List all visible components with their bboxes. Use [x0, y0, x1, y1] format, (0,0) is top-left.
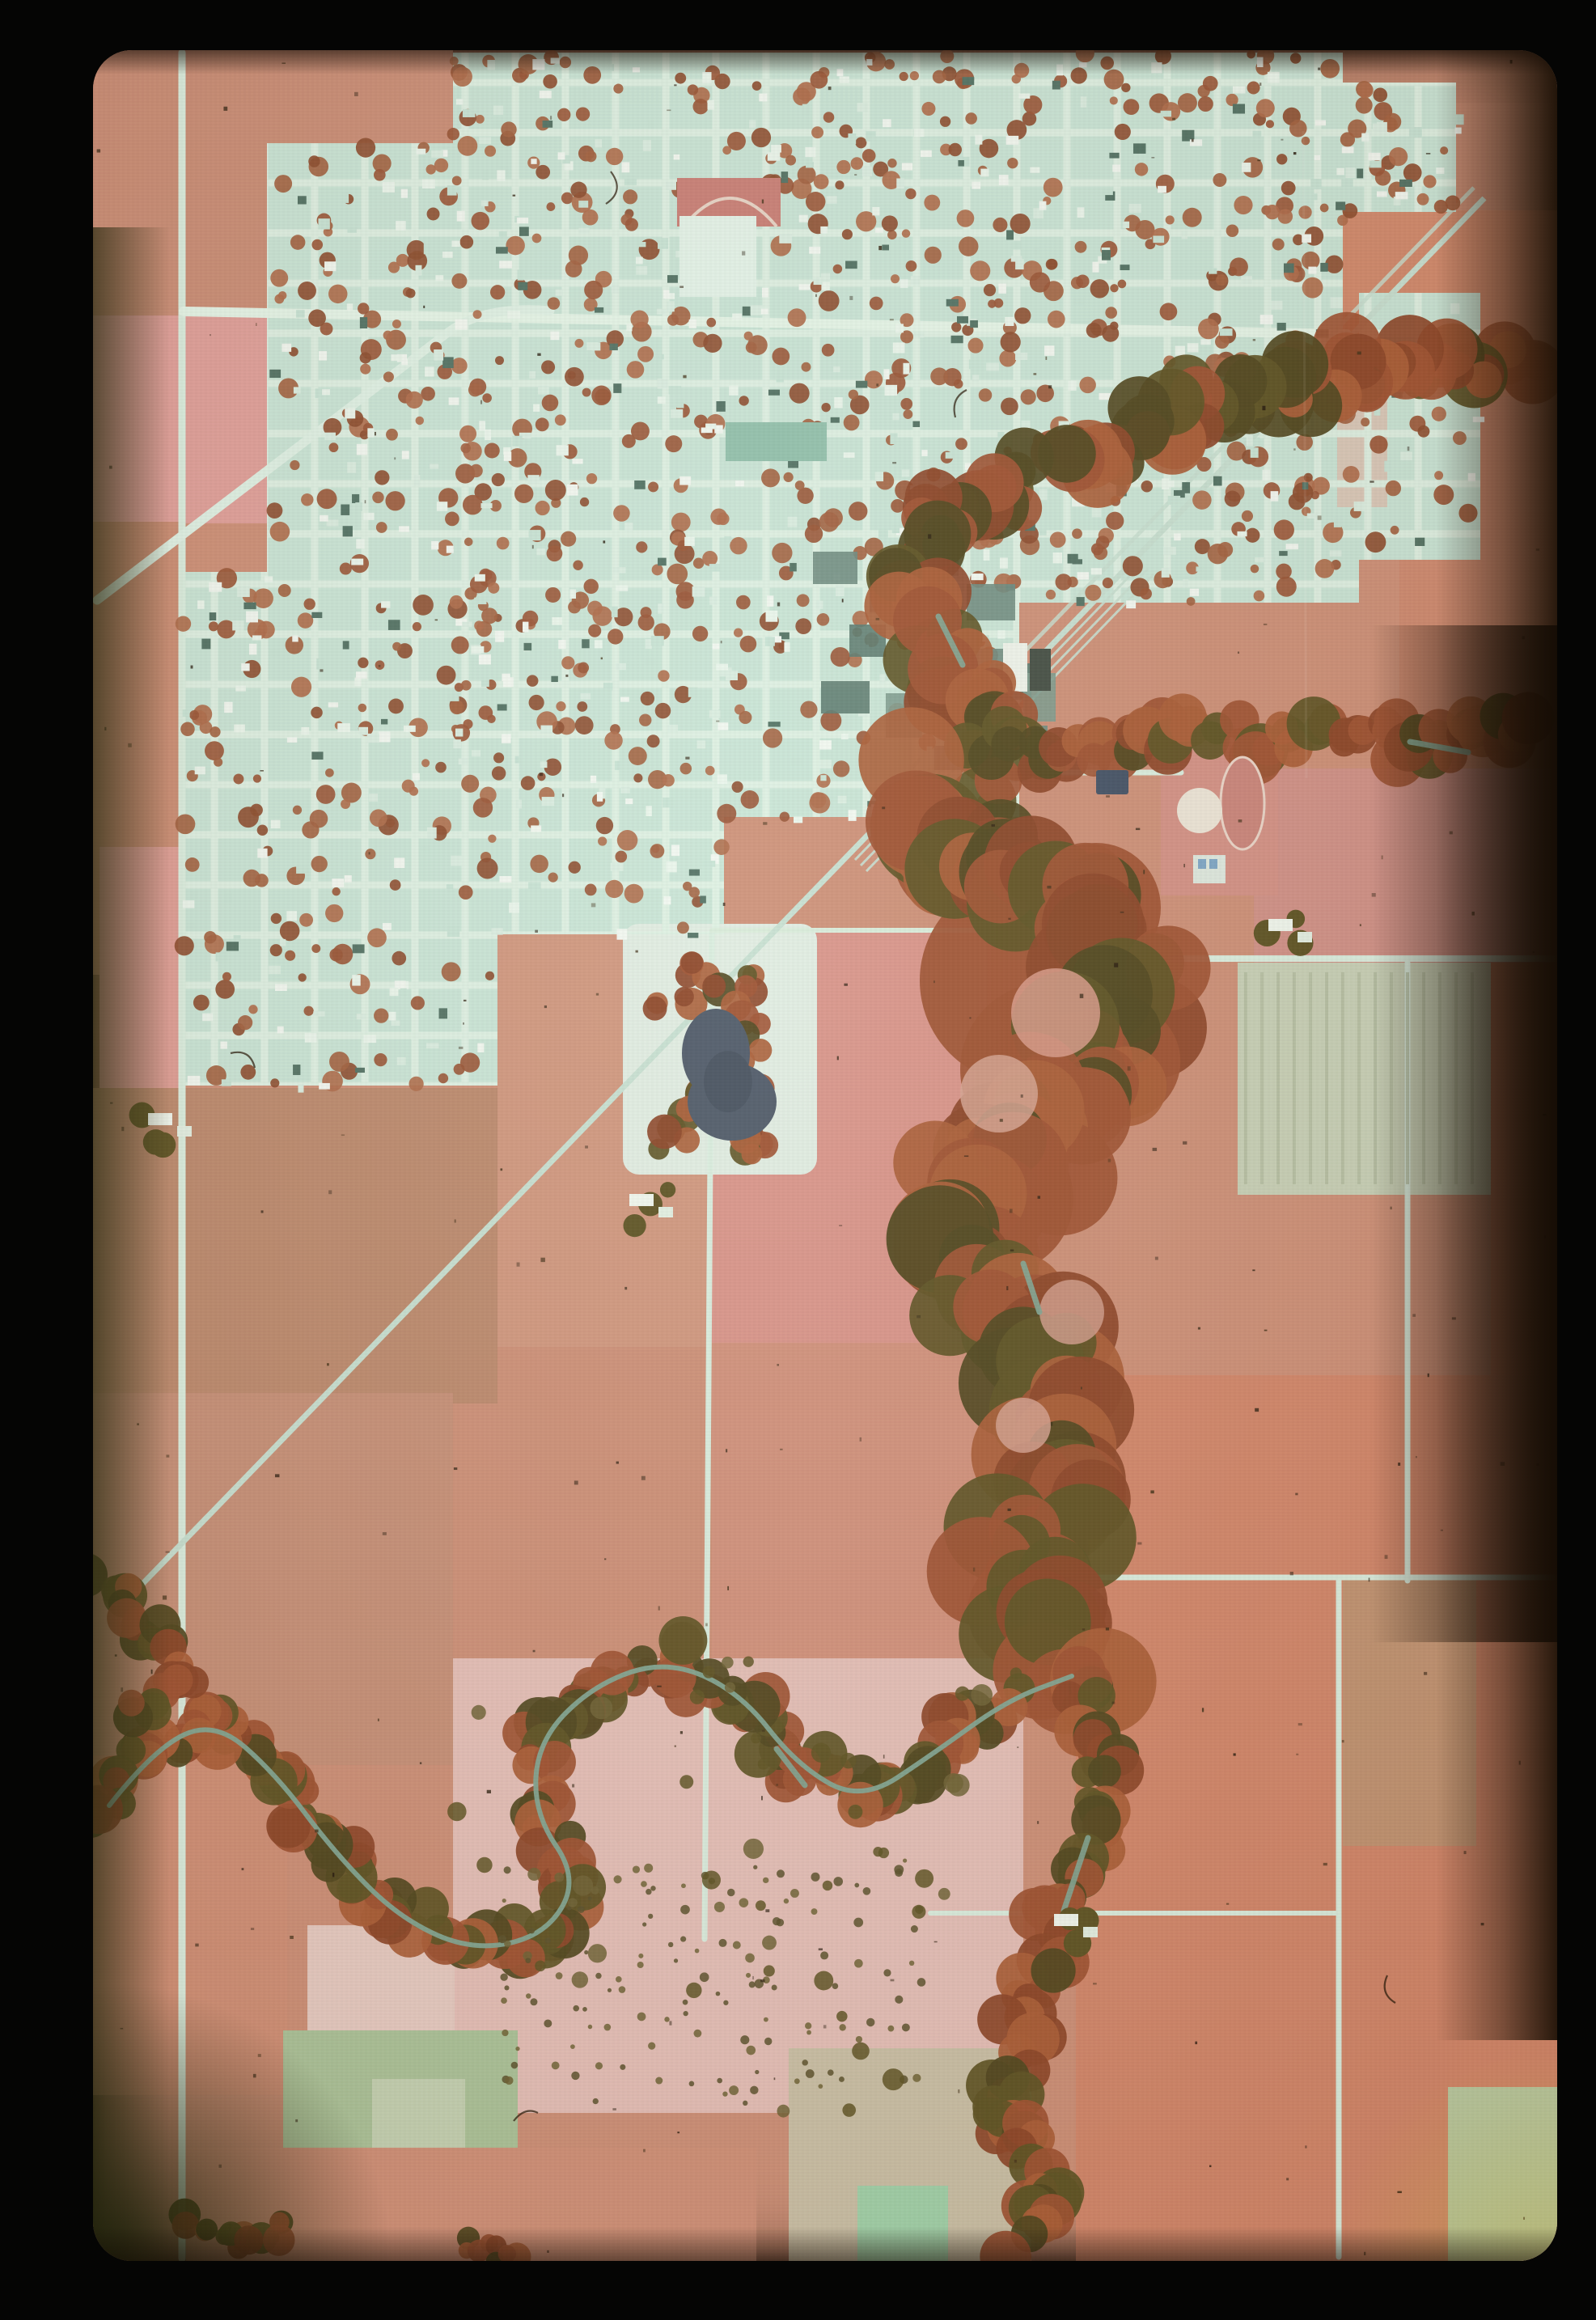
slide-mount: [0, 0, 1596, 2320]
field-se-tan-patch: [1343, 1577, 1476, 1846]
field-e-orange: [1491, 963, 1557, 1379]
swimming-pool: [1096, 770, 1128, 794]
trellis-field-rows: [1246, 972, 1472, 1184]
aerial-scene: [93, 50, 1557, 2261]
school-building: [679, 216, 756, 297]
aerial-photo: [93, 50, 1557, 2261]
city-park: [726, 422, 827, 461]
ballfield-diamond: [1177, 788, 1222, 833]
ballfield-oval: [1221, 757, 1264, 849]
field-e-trellis: [1238, 963, 1492, 1195]
field-w-pink-2: [99, 847, 184, 1130]
field-bright-green-patch: [857, 2186, 948, 2261]
field-br-green-corner: [1448, 2087, 1557, 2261]
